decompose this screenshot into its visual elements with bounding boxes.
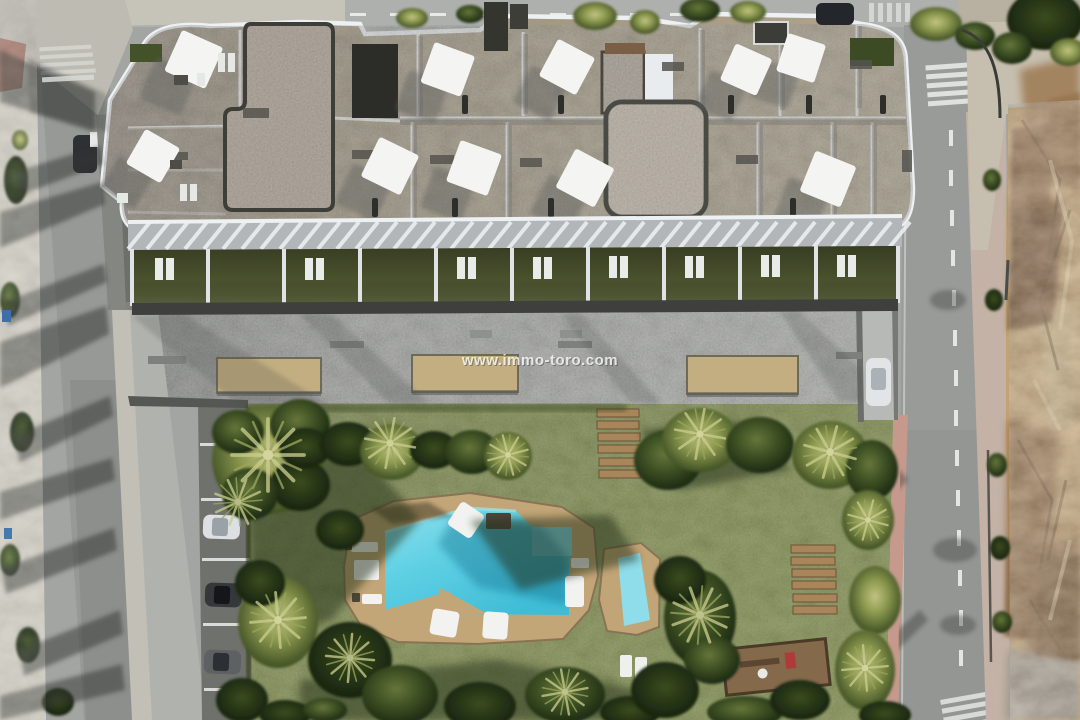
svg-text:www.immo-toro.com: www.immo-toro.com bbox=[461, 352, 618, 369]
